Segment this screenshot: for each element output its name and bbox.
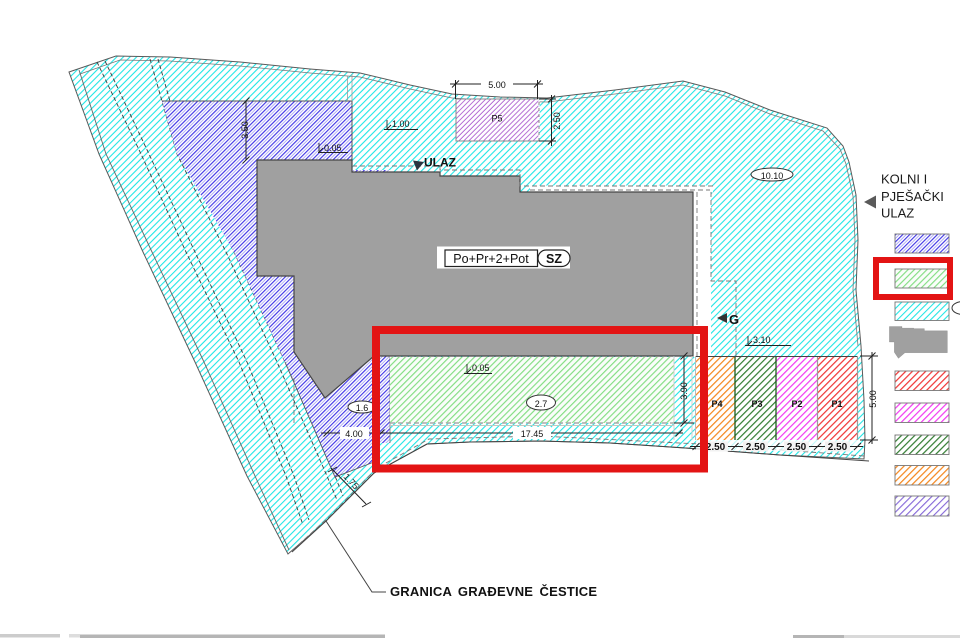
svg-text:17.45: 17.45	[521, 429, 544, 439]
svg-text:3.10: 3.10	[753, 335, 771, 345]
svg-text:Po+Pr+2+Pot: Po+Pr+2+Pot	[453, 252, 529, 266]
svg-text:1.6: 1.6	[356, 403, 369, 413]
svg-text:2.50: 2.50	[828, 442, 848, 453]
svg-text:0.05: 0.05	[324, 143, 342, 153]
svg-text:5.00: 5.00	[488, 80, 506, 90]
svg-text:2.50: 2.50	[746, 442, 766, 453]
svg-text:2.7: 2.7	[535, 399, 548, 409]
svg-text:2.50: 2.50	[787, 442, 807, 453]
svg-text:P2: P2	[791, 399, 802, 409]
svg-text:G: G	[729, 312, 739, 327]
svg-text:P3: P3	[751, 399, 762, 409]
svg-text:P1: P1	[831, 399, 842, 409]
svg-text:5.00: 5.00	[868, 390, 878, 408]
svg-text:10.10: 10.10	[761, 171, 784, 181]
svg-text:P5: P5	[491, 114, 502, 124]
svg-text:1.00: 1.00	[392, 119, 410, 129]
svg-text:KOLNI I: KOLNI I	[881, 172, 927, 187]
svg-text:PJEŠAČKI: PJEŠAČKI	[881, 189, 944, 204]
svg-text:SZ: SZ	[546, 252, 562, 266]
svg-text:ULAZ: ULAZ	[424, 156, 456, 170]
svg-text:4.00: 4.00	[345, 429, 363, 439]
svg-text:GRANICA GRAĐEVNE ČESTICE: GRANICA GRAĐEVNE ČESTICE	[390, 584, 597, 599]
svg-text:2.50: 2.50	[706, 442, 726, 453]
svg-text:ULAZ: ULAZ	[881, 206, 914, 221]
svg-text:P4: P4	[711, 399, 722, 409]
svg-text:3.50: 3.50	[240, 121, 250, 139]
svg-text:0.05: 0.05	[472, 363, 490, 373]
svg-text:3.90: 3.90	[679, 382, 689, 400]
svg-text:2.50: 2.50	[552, 112, 562, 130]
